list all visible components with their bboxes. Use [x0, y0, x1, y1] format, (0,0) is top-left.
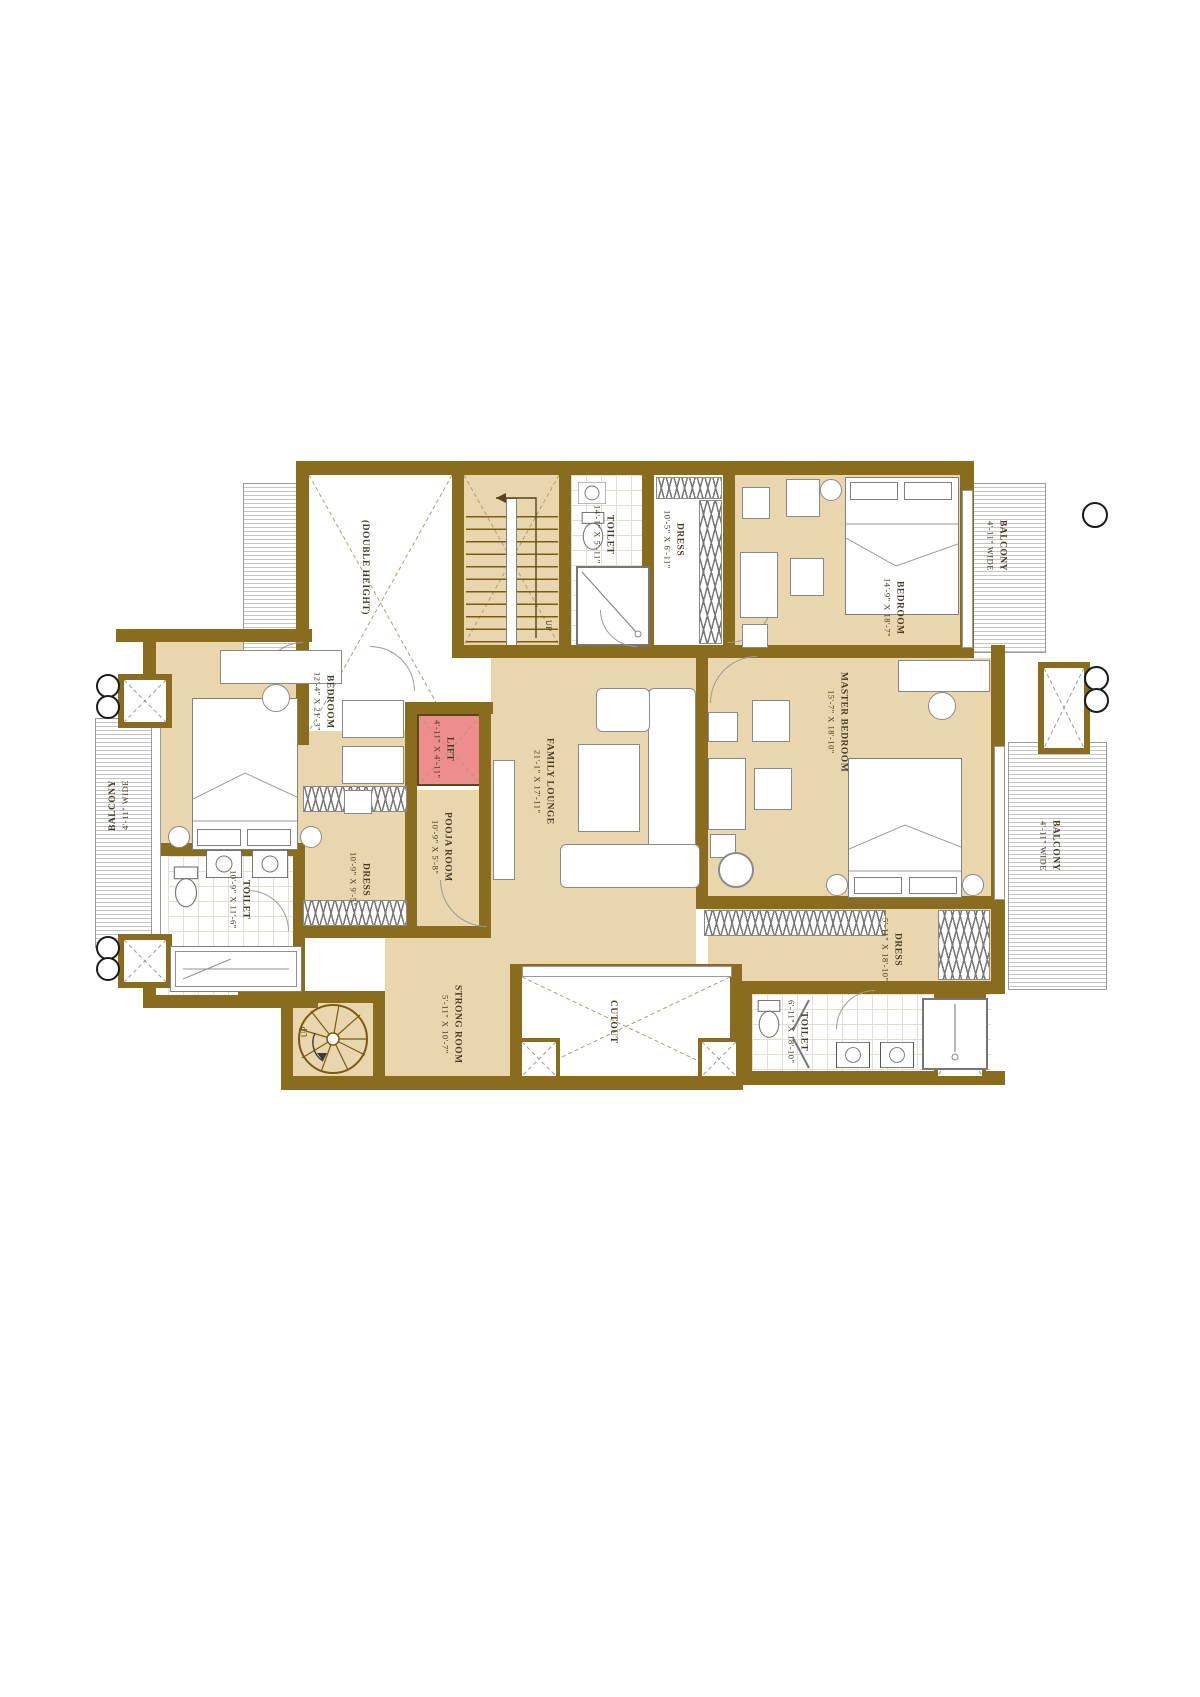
room-label-dress-left: DRESS 10'-9" X 9'-5"	[348, 852, 371, 906]
room-dims: 5'-11" X 10'-7"	[440, 985, 451, 1064]
sofa	[560, 844, 700, 888]
desk-chair	[262, 684, 290, 712]
room-dims: 4'-11" WIDE	[1038, 820, 1049, 871]
room-name: DRESS	[891, 918, 903, 982]
room-dims: 10'-5" X 6'-11"	[662, 510, 673, 569]
room-dims: 4'-11" WIDE	[985, 520, 996, 571]
room-label-cutout: CUTOUT	[606, 1000, 618, 1043]
spiral-staircase	[293, 1003, 373, 1076]
desk-chair	[928, 692, 956, 720]
wall-segment	[293, 926, 488, 938]
coffee-table	[578, 744, 640, 832]
room-dims: 14'-9" X 18'-7"	[882, 578, 893, 637]
bedside-table	[820, 479, 842, 501]
balcony-left	[95, 718, 157, 948]
room-name: BEDROOM	[323, 672, 335, 731]
room-label-strong-room: STRONG ROOM 5'-11" X 10'-7"	[440, 985, 463, 1064]
room-label-family-lounge: FAMILY LOUNGE 21'-1" X 17'-11"	[532, 738, 555, 825]
pier-circle	[96, 957, 120, 981]
room-name: TOILET	[797, 1000, 809, 1064]
wall-segment	[559, 461, 571, 658]
column-pier	[698, 1038, 740, 1080]
room-name: TOILET	[239, 870, 251, 929]
room-label-balcony-right: BALCONY 4'-11" WIDE	[1038, 820, 1061, 871]
wall-segment	[238, 991, 383, 1003]
pier-cross-icon	[124, 940, 166, 982]
pier-circle	[1082, 502, 1108, 528]
pier-cross-icon	[522, 1042, 556, 1076]
room-dims: 12'-4" X 21'-3"	[312, 672, 323, 731]
wall-segment	[373, 991, 385, 1090]
room-label-balcony-left: BALCONY 4'-11" WIDE	[108, 780, 131, 831]
armchair	[708, 712, 738, 742]
window	[522, 966, 732, 977]
room-dims: 14'-1" X 5'-11"	[592, 505, 603, 564]
pier-circle	[1084, 688, 1109, 713]
side-table	[344, 790, 372, 814]
wash-basin	[718, 852, 754, 888]
bathtub	[170, 946, 302, 992]
room-label-bedroom-top-right: BEDROOM 14'-9" X 18'-7"	[882, 578, 905, 637]
room-dims: 5'-11" X 18'-10"	[880, 918, 891, 982]
room-name: TOILET	[603, 505, 615, 564]
bed	[192, 698, 298, 850]
room-dims: 10'-9" X 5'-8"	[430, 812, 441, 882]
wall-segment	[452, 461, 464, 658]
armchair	[754, 768, 792, 810]
tv-console	[493, 760, 515, 880]
stair-up-label: UP	[543, 620, 553, 631]
bedside-table	[826, 874, 848, 896]
wall-segment	[296, 461, 974, 475]
window	[962, 490, 973, 648]
label-text: UP	[300, 1026, 310, 1037]
sink-fixture	[880, 1042, 914, 1068]
toilet-fixture	[172, 866, 200, 910]
sink-fixture	[252, 850, 288, 878]
column-pier	[1038, 662, 1090, 754]
armchair	[786, 479, 820, 517]
bedside-table	[962, 874, 984, 896]
wardrobe	[938, 910, 990, 980]
sofa	[740, 552, 778, 618]
room-name: (DOUBLE HEIGHT)	[358, 520, 370, 615]
window	[151, 716, 161, 942]
room-name: BALCONY	[1049, 820, 1061, 871]
room-dims: 4'-11" X 4'-11"	[432, 720, 443, 778]
room-name: LIFT	[443, 720, 455, 778]
room-name: CUTOUT	[606, 1000, 618, 1043]
room-dims: 6'-11" X 18'-10"	[786, 1000, 797, 1064]
bedside-table	[300, 826, 322, 848]
pier-cross-icon	[124, 680, 166, 722]
sofa	[342, 746, 404, 784]
pier-cross-icon	[702, 1042, 736, 1076]
column-pier	[118, 934, 172, 988]
room-name: DRESS	[673, 510, 685, 569]
room-dims: 10'-9" X 9'-5"	[348, 852, 359, 906]
sofa	[708, 758, 746, 830]
room-label-double-height: (DOUBLE HEIGHT)	[358, 520, 370, 615]
room-dims: 21'-1" X 17'-11"	[532, 738, 543, 825]
floor-plan: (DOUBLE HEIGHT) UP TOILET 14'-1" X 5'-11…	[0, 0, 1200, 1697]
room-label-dress-top: DRESS 10'-5" X 6'-11"	[662, 510, 685, 569]
armchair	[752, 700, 790, 742]
pier-circle	[96, 695, 120, 719]
room-label-toilet-left: TOILET 10'-9" X 11'-6"	[228, 870, 251, 929]
room-label-pooja: POOJA ROOM 10'-9" X 5'-8"	[430, 812, 453, 882]
column-pier	[118, 674, 172, 728]
wardrobe	[656, 477, 722, 499]
room-name: BALCONY	[996, 520, 1008, 571]
window	[994, 746, 1005, 900]
armchair	[742, 487, 770, 519]
sofa	[596, 688, 650, 732]
sofa	[342, 700, 404, 738]
wardrobe	[704, 910, 886, 936]
shower-stall	[922, 998, 988, 1070]
room-label-toilet-right: TOILET 6'-11" X 18'-10"	[786, 1000, 809, 1064]
room-name: BALCONY	[108, 780, 120, 831]
armchair	[790, 558, 824, 596]
bed	[848, 758, 962, 898]
pier-cross-icon	[1044, 668, 1084, 748]
room-name: MASTER BEDROOM	[837, 672, 849, 772]
room-name: STRONG ROOM	[451, 985, 463, 1064]
room-label-bedroom-left: BEDROOM 12'-4" X 21'-3"	[312, 672, 335, 731]
sink-fixture	[836, 1042, 870, 1068]
room-dims: 10'-9" X 11'-6"	[228, 870, 239, 929]
room-name: BEDROOM	[893, 578, 905, 637]
room-dims: 15'-7" X 18'-10"	[826, 672, 837, 772]
room-label-toilet-top: TOILET 14'-1" X 5'-11"	[592, 505, 615, 564]
sink-fixture	[578, 482, 606, 504]
room-name: POOJA ROOM	[441, 812, 453, 882]
wardrobe	[699, 500, 722, 644]
room-name: DRESS	[359, 852, 371, 906]
spiral-up-label: UP	[300, 1026, 310, 1037]
toilet-fixture	[756, 1000, 782, 1040]
wall-segment	[281, 991, 293, 1090]
wall-segment	[452, 645, 974, 658]
side-table	[742, 624, 768, 648]
room-label-lift: LIFT 4'-11" X 4'-11"	[432, 720, 455, 778]
room-name: FAMILY LOUNGE	[543, 738, 555, 825]
bedside-table	[168, 826, 190, 848]
room-label-master-bedroom: MASTER BEDROOM 15'-7" X 18'-10"	[826, 672, 849, 772]
column-pier	[518, 1038, 560, 1080]
room-label-dress-right: DRESS 5'-11" X 18'-10"	[880, 918, 903, 982]
desk	[898, 660, 990, 692]
room-dims: 4'-11" WIDE	[120, 780, 131, 831]
room-label-balcony-top-right: BALCONY 4'-11" WIDE	[985, 520, 1008, 571]
label-text: UP	[543, 620, 553, 631]
